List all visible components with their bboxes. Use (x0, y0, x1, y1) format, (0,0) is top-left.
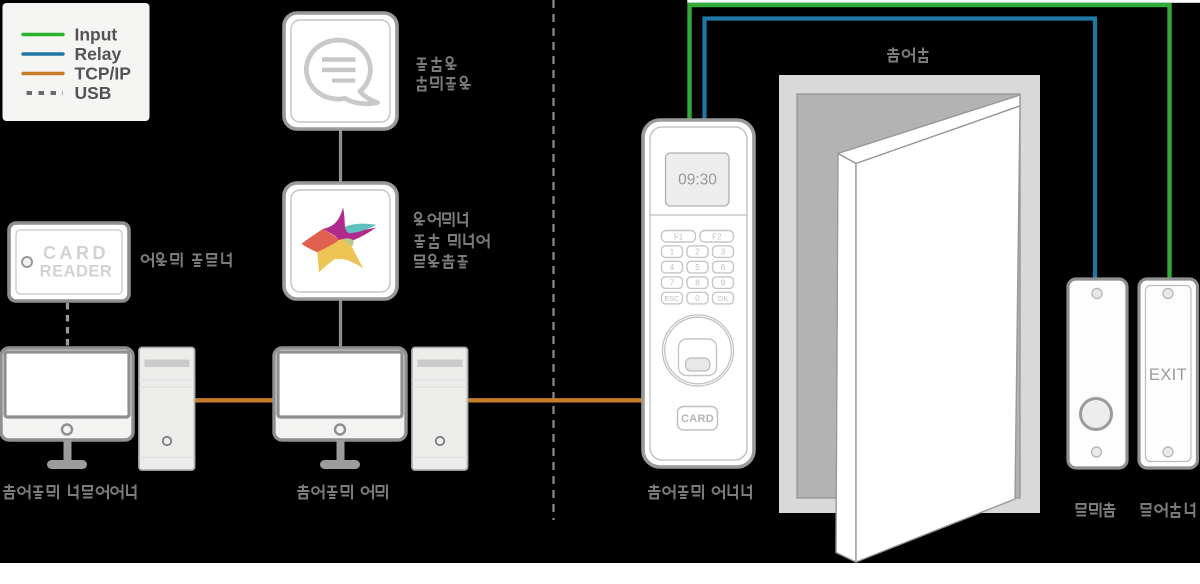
svg-text:USB: USB (75, 83, 112, 103)
svg-text:0: 0 (695, 294, 700, 303)
svg-text:Input: Input (75, 25, 118, 45)
svg-text:09:30: 09:30 (678, 172, 717, 189)
svg-text:2: 2 (695, 248, 700, 257)
svg-text:OK: OK (718, 294, 729, 303)
svg-text:CARD: CARD (43, 243, 109, 263)
svg-text:Relay: Relay (75, 44, 122, 64)
svg-text:7: 7 (670, 279, 675, 288)
svg-text:1: 1 (670, 248, 675, 257)
svg-text:TCP/IP: TCP/IP (75, 64, 132, 84)
svg-text:ESC: ESC (665, 296, 679, 303)
svg-text:F1: F1 (674, 232, 684, 241)
svg-text:3: 3 (721, 248, 726, 257)
svg-text:8: 8 (695, 279, 700, 288)
svg-text:9: 9 (721, 279, 726, 288)
svg-text:EXIT: EXIT (1149, 366, 1187, 384)
svg-text:READER: READER (40, 263, 113, 281)
svg-text:6: 6 (721, 263, 726, 272)
svg-text:5: 5 (695, 263, 700, 272)
svg-text:CARD: CARD (681, 413, 714, 425)
svg-text:4: 4 (670, 263, 675, 272)
svg-text:F2: F2 (712, 232, 722, 241)
